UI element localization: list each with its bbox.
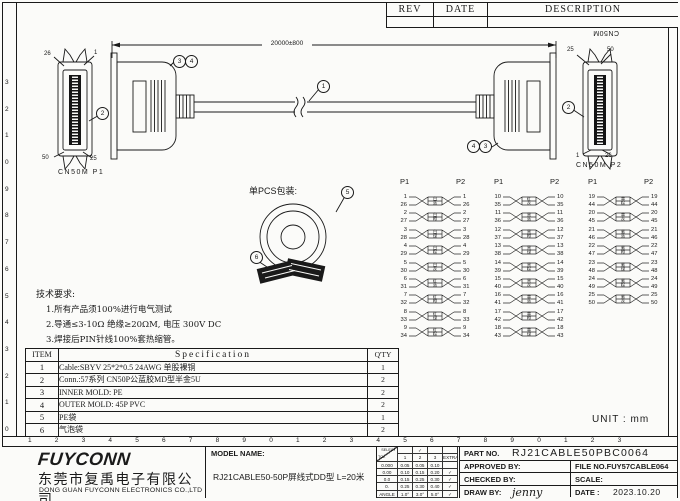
spec-description: INNER MOLD: PE (59, 386, 368, 399)
twisted-pair: 16 41 黄 蓝 16 41 (490, 291, 574, 307)
svg-text:灰: 灰 (527, 282, 532, 289)
p2-rotated-name: CN50M (585, 29, 619, 36)
pair-p2-ring: 50 (651, 300, 657, 306)
left-ruler-digit: 0 (5, 159, 9, 166)
spec-item-no: 4 (26, 399, 59, 412)
draw-by-value: jenny (512, 486, 542, 499)
twisted-pair-symbol: 红 灰 (503, 193, 555, 209)
pair-p2-tip: 11 (557, 210, 563, 216)
twisted-pair-symbol: 黑 橙 (503, 226, 555, 242)
pair-p1-tip: 2 (396, 210, 407, 216)
spec-description: PE袋 (59, 411, 368, 424)
pair-p2-tip: 1 (463, 194, 466, 200)
twisted-pair: 9 34 红 棕 9 34 (396, 324, 480, 340)
tolerance-cell: SELECTTOL (377, 447, 398, 462)
bottom-ruler-digit: 3 (82, 437, 86, 444)
pair-p1-ring: 46 (584, 235, 595, 241)
callout-p2-connector: 2 (562, 101, 575, 114)
pair-p1-ring: 43 (490, 333, 501, 339)
pair-p1-tip: 19 (584, 194, 595, 200)
file-no-cell: FILE NO.FUY57CABLE064 (570, 460, 677, 472)
p1-connector-name: CN50M P1 (58, 169, 104, 176)
twisted-pair-symbol: 红 蓝 (409, 275, 461, 291)
p2-pin25-label: 25 (567, 47, 574, 53)
pair-p1-tip: 17 (490, 309, 501, 315)
pair-p1-ring: 47 (584, 251, 595, 257)
p1-pin50-label: 50 (42, 155, 49, 161)
left-ruler-digit: 1 (5, 399, 9, 406)
pair-p2-ring: 29 (463, 251, 469, 257)
pair-p1-ring: 50 (584, 300, 595, 306)
spec-qty: 1 (368, 361, 399, 374)
tolerance-cell: ✓ (413, 447, 428, 454)
left-ruler-digit: 6 (5, 266, 9, 273)
pair-p2-ring: 47 (651, 251, 657, 257)
cable-length-dimension: 20000±800 (262, 40, 312, 47)
pair-p2-tip: 10 (557, 194, 563, 200)
twisted-pair-symbol: 白 棕 (409, 242, 461, 258)
company-name-en: DONG GUAN FUYCONN ELECTRONICS CO.,LTD (39, 487, 202, 494)
twisted-pair-symbol: 黑 绿 (503, 242, 555, 258)
engineering-drawing-sheet: REV DATE DESCRIPTION 20000±800 26 1 50 2… (0, 0, 680, 501)
pair-p1-ring: 34 (396, 333, 407, 339)
specification-header: Specification (59, 349, 368, 362)
pair-p1-ring: 49 (584, 284, 595, 290)
left-ruler-digit: 9 (5, 186, 9, 193)
bottom-ruler-digit: 3 (618, 437, 622, 444)
scale-cell: SCALE: (570, 473, 677, 485)
tech-requirement-item: 2.导通≤3-10Ω 绝缘≥20ΩM, 电压 300V DC (46, 318, 221, 333)
svg-text:绿: 绿 (621, 265, 626, 271)
file-no-label: FILE NO.FUY57CABLE064 (575, 462, 668, 471)
tolerance-cell: 0.10 (428, 462, 443, 469)
left-ruler-digit: 2 (5, 106, 9, 113)
callout-outer-mold-left: 4 (185, 55, 198, 68)
bottom-ruler-digit: 5 (135, 437, 139, 444)
spec-item-no: 2 (26, 374, 59, 387)
svg-text:蓝: 蓝 (527, 298, 532, 304)
twisted-pair: 22 47 紫 橙 22 47 (584, 242, 668, 258)
spec-item-no: 3 (26, 386, 59, 399)
tolerance-cell: 0.05 (398, 462, 413, 469)
left-ruler-digit: 2 (5, 373, 9, 380)
bottom-ruler-digit: 9 (510, 437, 514, 444)
twisted-pair: 7 32 红 橙 7 32 (396, 291, 480, 307)
pair-p1-ring: 39 (490, 268, 501, 274)
p1-pin1-label: 1 (94, 50, 97, 56)
p2-pin50-label: 50 (607, 47, 614, 53)
description-value (488, 17, 678, 27)
packaging-label: 单PCS包装: (249, 184, 297, 197)
callout-cable: 1 (317, 80, 330, 93)
pair-p1-ring: 31 (396, 284, 407, 290)
bottom-ruler-digit: 6 (162, 437, 166, 444)
pair-p1-tip: 20 (584, 210, 595, 216)
svg-text:蓝: 蓝 (621, 232, 626, 238)
pair-p1-ring: 37 (490, 235, 501, 241)
pair-p1-tip: 11 (490, 210, 501, 216)
tolerance-cell: 0. (377, 483, 398, 490)
twisted-pair-symbol: 紫 棕 (597, 275, 649, 291)
pair-p1-ring: 29 (396, 251, 407, 257)
twisted-pair: 10 35 红 灰 10 35 (490, 193, 574, 209)
twisted-pair-symbol: 紫 橙 (597, 242, 649, 258)
spec-qty: 1 (368, 411, 399, 424)
svg-text:棕: 棕 (527, 265, 532, 272)
twisted-pair: 4 29 白 棕 4 29 (396, 242, 480, 258)
specification-table: ITEM Specification Q'TY1 Cable:SBYV 25*2… (25, 348, 399, 437)
unit-label: UNIT : mm (592, 414, 649, 425)
company-logo: FUYCONN (37, 449, 132, 470)
twisted-pair: 3 28 白 绿 3 28 (396, 226, 480, 242)
tolerance-cell: ANGLE (377, 491, 398, 498)
twisted-pair-symbol: 红 棕 (409, 324, 461, 340)
bottom-ruler-digit: 8 (216, 437, 220, 444)
approved-row: APPROVED BY: FILE NO.FUY57CABLE064 (460, 460, 677, 473)
pair-p1-tip: 9 (396, 325, 407, 331)
pair-p1-ring: 45 (584, 218, 595, 224)
pair-p1-tip: 16 (490, 292, 501, 298)
tolerance-cell (398, 447, 413, 454)
twisted-pair: 20 45 黄 灰 20 45 (584, 209, 668, 225)
p1-column-header: P1 (494, 177, 503, 186)
pair-p1-tip: 25 (584, 292, 595, 298)
bottom-ruler-digit: 5 (403, 437, 407, 444)
tolerance-cell: ✓ (443, 469, 458, 476)
twisted-pair-symbol: 黄 灰 (597, 209, 649, 225)
pair-p2-ring: 48 (651, 268, 657, 274)
twisted-pair: 17 42 黄 橙 17 42 (490, 308, 574, 324)
pair-p2-tip: 25 (651, 292, 657, 298)
tech-requirements-title: 技术要求: (36, 287, 221, 300)
company-cell: FUYCONN 东莞市复禹电子有限公司 DONG GUAN FUYCONN EL… (2, 447, 206, 498)
pair-p2-tip: 4 (463, 243, 466, 249)
twisted-pair-symbol: 黄 蓝 (503, 291, 555, 307)
spec-row: 2 Conn.:57系列 CN50P公蓝胶MD型半金5U 2 (26, 374, 399, 387)
tolerance-cell: 0.10 (398, 469, 413, 476)
pair-p2-ring: 44 (651, 202, 657, 208)
svg-text:棕: 棕 (433, 331, 438, 338)
pair-p1-ring: 42 (490, 317, 501, 323)
twisted-pair-symbol: 白 灰 (409, 259, 461, 275)
tolerance-cell: 0.000 (377, 462, 398, 469)
svg-text:橙: 橙 (621, 249, 626, 256)
qty-header: Q'TY (368, 349, 399, 362)
spec-description: OUTER MOLD: 45P PVC (59, 399, 368, 412)
date-value: 2023.10.20 (613, 487, 661, 497)
pair-p1-tip: 1 (396, 194, 407, 200)
callout-inner-mold-right: 3 (479, 140, 492, 153)
bottom-ruler-digit: 8 (484, 437, 488, 444)
tolerance-cell: 1.0° (398, 491, 413, 498)
bottom-ruler-digit: 2 (55, 437, 59, 444)
twisted-pair: 25 50 紫 灰 25 50 (584, 291, 668, 307)
svg-text:橙: 橙 (527, 232, 532, 239)
model-name-value: RJ21CABLE50-50P屏线式DD型 L=20米 (213, 471, 364, 483)
pair-p2-tip: 14 (557, 260, 563, 266)
pair-p1-tip: 23 (584, 260, 595, 266)
pair-p2-ring: 39 (557, 268, 563, 274)
twisted-pair: 6 31 红 蓝 6 31 (396, 275, 480, 291)
twisted-pair: 11 36 黑 蓝 11 36 (490, 209, 574, 225)
pair-p2-tip: 20 (651, 210, 657, 216)
draw-by-label: DRAW BY: (464, 488, 501, 497)
company-name-cn: 东莞市复禹电子有限公司 (38, 469, 205, 501)
tech-requirement-item: 1.所有产品须100%进行电气测试 (46, 303, 221, 318)
tolerance-cell: 1 (398, 454, 413, 461)
twisted-pair: 21 46 紫 蓝 21 46 (584, 226, 668, 242)
pair-p1-tip: 5 (396, 260, 407, 266)
pair-p1-ring: 44 (584, 202, 595, 208)
bottom-ruler-digit: 4 (376, 437, 380, 444)
svg-text:棕: 棕 (621, 200, 626, 207)
tolerance-cell: 0.25 (413, 476, 428, 483)
left-ruler-digit: 0 (5, 426, 9, 433)
p1-column-header: P1 (588, 177, 597, 186)
item-header: ITEM (26, 349, 59, 362)
pair-p1-tip: 7 (396, 292, 407, 298)
p2-connector-name: CN50M P2 (576, 162, 622, 169)
pair-p2-tip: 15 (557, 276, 563, 282)
pair-p2-tip: 8 (463, 309, 466, 315)
pair-p2-ring: 31 (463, 284, 469, 290)
bottom-ruler-digit: 1 (28, 437, 32, 444)
pair-p2-ring: 34 (463, 333, 469, 339)
rev-value (387, 17, 434, 27)
model-name-label: MODEL NAME: (211, 449, 265, 458)
twisted-pair: 15 40 黑 灰 15 40 (490, 275, 574, 291)
tolerance-cell: ✓ (443, 476, 458, 483)
p2-pin-field (594, 75, 606, 145)
bottom-ruler-digit: 0 (269, 437, 273, 444)
spec-header-row: ITEM Specification Q'TY (26, 349, 399, 362)
twisted-pair-symbol: 白 橙 (409, 209, 461, 225)
svg-text:橙: 橙 (433, 298, 438, 305)
pair-p1-tip: 13 (490, 243, 501, 249)
pair-p2-tip: 3 (463, 227, 466, 233)
tolerance-cell (428, 447, 443, 454)
svg-text:蓝: 蓝 (527, 216, 532, 222)
twisted-pair: 5 30 白 灰 5 30 (396, 259, 480, 275)
p2-column-header: P2 (644, 177, 653, 186)
spec-qty: 2 (368, 386, 399, 399)
bottom-ruler-digit: 1 (296, 437, 300, 444)
part-no-value: RJ21CABLE50PBC0064 (512, 447, 649, 459)
twisted-pair-symbol: 紫 灰 (597, 291, 649, 307)
bottom-ruler-digit: 6 (430, 437, 434, 444)
pair-p1-ring: 35 (490, 202, 501, 208)
twisted-pair-symbol: 红 橙 (409, 291, 461, 307)
spec-item-no: 5 (26, 411, 59, 424)
pair-p2-tip: 24 (651, 276, 657, 282)
pair-p1-ring: 48 (584, 268, 595, 274)
twisted-pair-symbol: 黑 灰 (503, 275, 555, 291)
pair-p2-ring: 42 (557, 317, 563, 323)
revision-empty-row (387, 16, 678, 27)
rev-header: REV (387, 3, 434, 16)
date-label: DATE : (575, 488, 599, 497)
date-value (434, 17, 488, 27)
svg-text:橙: 橙 (433, 216, 438, 223)
tolerance-cell (443, 462, 458, 469)
pair-p1-tip: 14 (490, 260, 501, 266)
p2-pin1-label: 1 (576, 153, 579, 159)
pair-p1-ring: 40 (490, 284, 501, 290)
twisted-pair: 14 39 黑 棕 14 39 (490, 259, 574, 275)
spec-qty: 2 (368, 374, 399, 387)
left-ruler-digit: 8 (5, 212, 9, 219)
spec-item-no: 1 (26, 361, 59, 374)
twisted-pair: 24 49 紫 棕 24 49 (584, 275, 668, 291)
draw-row: DRAW BY: jenny DATE : 2023.10.20 (460, 486, 677, 497)
svg-text:蓝: 蓝 (433, 200, 438, 206)
pair-p1-tip: 15 (490, 276, 501, 282)
file-no-value: FUY57CABLE064 (607, 462, 669, 471)
p1-pin26-label: 26 (44, 51, 51, 57)
tolerance-cell: 0.15 (398, 476, 413, 483)
pair-p2-tip: 2 (463, 210, 466, 216)
svg-text:绿: 绿 (433, 314, 438, 320)
pair-p1-tip: 18 (490, 325, 501, 331)
bottom-ruler-digit: 7 (457, 437, 461, 444)
callout-pe-bag: 5 (341, 186, 354, 199)
twisted-pair-symbol: 紫 绿 (597, 259, 649, 275)
bottom-ruler-digit: 9 (242, 437, 246, 444)
date-header: DATE (434, 3, 488, 16)
pair-p2-tip: 7 (463, 292, 466, 298)
pair-p2-ring: 37 (557, 235, 563, 241)
bottom-ruler-digit: 1 (564, 437, 568, 444)
left-ruler-digit: 1 (5, 132, 9, 139)
spec-description: Cable:SBYV 25*2*0.5 24AWG 单股裸铜 (59, 361, 368, 374)
twisted-pair: 13 38 黑 绿 13 38 (490, 242, 574, 258)
tolerance-cell: 3.0° (413, 491, 428, 498)
bottom-ruler-digit: 7 (189, 437, 193, 444)
pair-p1-tip: 8 (396, 309, 407, 315)
pair-p1-tip: 22 (584, 243, 595, 249)
twisted-pair: 1 26 白 蓝 1 26 (396, 193, 480, 209)
twisted-pair: 2 27 白 橙 2 27 (396, 209, 480, 225)
approved-by-label: APPROVED BY: (464, 462, 521, 471)
pair-p2-tip: 23 (651, 260, 657, 266)
revision-table: REV DATE DESCRIPTION (386, 3, 678, 28)
svg-text:棕: 棕 (433, 249, 438, 256)
twisted-pair-symbol: 黄 棕 (597, 193, 649, 209)
left-ruler-digit: 5 (5, 293, 9, 300)
twisted-pair-symbol: 白 绿 (409, 226, 461, 242)
pair-p1-ring: 30 (396, 268, 407, 274)
pair-p1-tip: 24 (584, 276, 595, 282)
svg-text:灰: 灰 (621, 216, 626, 223)
svg-text:灰: 灰 (527, 200, 532, 207)
bottom-ruler-digit: 0 (537, 437, 541, 444)
pair-p1-tip: 21 (584, 227, 595, 233)
left-ruler-digit: 4 (5, 319, 9, 326)
pair-p2-tip: 6 (463, 276, 466, 282)
pair-p2-ring: 27 (463, 218, 469, 224)
pair-p1-ring: 26 (396, 202, 407, 208)
scale-label: SCALE: (575, 475, 603, 484)
svg-text:灰: 灰 (433, 265, 438, 272)
tolerance-cell: 0.0 (377, 476, 398, 483)
pair-p1-ring: 38 (490, 251, 501, 257)
checked-row: CHECKED BY: SCALE: (460, 473, 677, 486)
tolerance-cell: 0.15 (413, 469, 428, 476)
pair-p2-ring: 46 (651, 235, 657, 241)
pair-p2-ring: 33 (463, 317, 469, 323)
tolerance-cell: 0.40 (428, 483, 443, 490)
pair-p2-tip: 16 (557, 292, 563, 298)
pair-p2-ring: 30 (463, 268, 469, 274)
pair-p1-tip: 6 (396, 276, 407, 282)
pair-p1-ring: 28 (396, 235, 407, 241)
left-ruler-digit: 3 (5, 346, 9, 353)
svg-text:绿: 绿 (433, 232, 438, 238)
spec-row: 1 Cable:SBYV 25*2*0.5 24AWG 单股裸铜 1 (26, 361, 399, 374)
tolerance-cell: 0.00 (377, 469, 398, 476)
left-ruler-digit: 7 (5, 239, 9, 246)
part-no-label: PART NO. (464, 449, 499, 458)
pair-p1-ring: 41 (490, 300, 501, 306)
p1-pin-field (69, 75, 81, 145)
twisted-pair-symbol: 黄 绿 (503, 324, 555, 340)
twisted-pair: 19 44 黄 棕 19 44 (584, 193, 668, 209)
tolerance-cell (443, 447, 458, 454)
pair-p2-tip: 19 (651, 194, 657, 200)
pair-p2-ring: 38 (557, 251, 563, 257)
pair-p2-ring: 45 (651, 218, 657, 224)
pair-p1-tip: 3 (396, 227, 407, 233)
pair-p1-ring: 32 (396, 300, 407, 306)
spec-description: 气泡袋 (59, 424, 368, 437)
technical-requirements: 技术要求: 1.所有产品须100%进行电气测试2.导通≤3-10Ω 绝缘≥20Ω… (36, 287, 221, 348)
pair-p1-ring: 27 (396, 218, 407, 224)
bottom-ruler-digit: 3 (350, 437, 354, 444)
twisted-pair-symbol: 黄 橙 (503, 308, 555, 324)
spec-description: Conn.:57系列 CN50P公蓝胶MD型半金5U (59, 374, 368, 387)
svg-text:绿: 绿 (527, 331, 532, 337)
twisted-pair-symbol: 红 绿 (409, 308, 461, 324)
pair-p2-ring: 49 (651, 284, 657, 290)
pair-p2-ring: 26 (463, 202, 469, 208)
svg-text:灰: 灰 (621, 298, 626, 305)
tolerance-cell: 0.20 (428, 469, 443, 476)
svg-text:绿: 绿 (527, 249, 532, 255)
pair-p2-tip: 12 (557, 227, 563, 233)
pair-p2-ring: 36 (557, 218, 563, 224)
tolerance-cell: 2 (413, 454, 428, 461)
left-ruler-digit: 3 (5, 79, 9, 86)
twisted-pair: 23 48 紫 绿 23 48 (584, 259, 668, 275)
pair-p2-ring: 32 (463, 300, 469, 306)
model-cell: MODEL NAME: RJ21CABLE50-50P屏线式DD型 L=20米 (206, 447, 377, 498)
spec-row: 4 OUTER MOLD: 45P PVC 2 (26, 399, 399, 412)
svg-text:蓝: 蓝 (433, 282, 438, 288)
twisted-pair: 8 33 红 绿 8 33 (396, 308, 480, 324)
spec-row: 5 PE袋 1 (26, 411, 399, 424)
tolerance-cell: 0.25 (398, 483, 413, 490)
svg-text:棕: 棕 (621, 282, 626, 289)
twisted-pair: 18 43 黄 绿 18 43 (490, 324, 574, 340)
p1-pin25-label: 25 (90, 156, 97, 162)
tolerance-cell: 0.30 (413, 483, 428, 490)
pair-p1-tip: 10 (490, 194, 501, 200)
tolerance-cell: 0.30 (428, 476, 443, 483)
twisted-pair-symbol: 黑 棕 (503, 259, 555, 275)
twisted-pair-symbol: 白 蓝 (409, 193, 461, 209)
title-block: FUYCONN 东莞市复禹电子有限公司 DONG GUAN FUYCONN EL… (2, 446, 677, 498)
spec-item-no: 6 (26, 424, 59, 437)
